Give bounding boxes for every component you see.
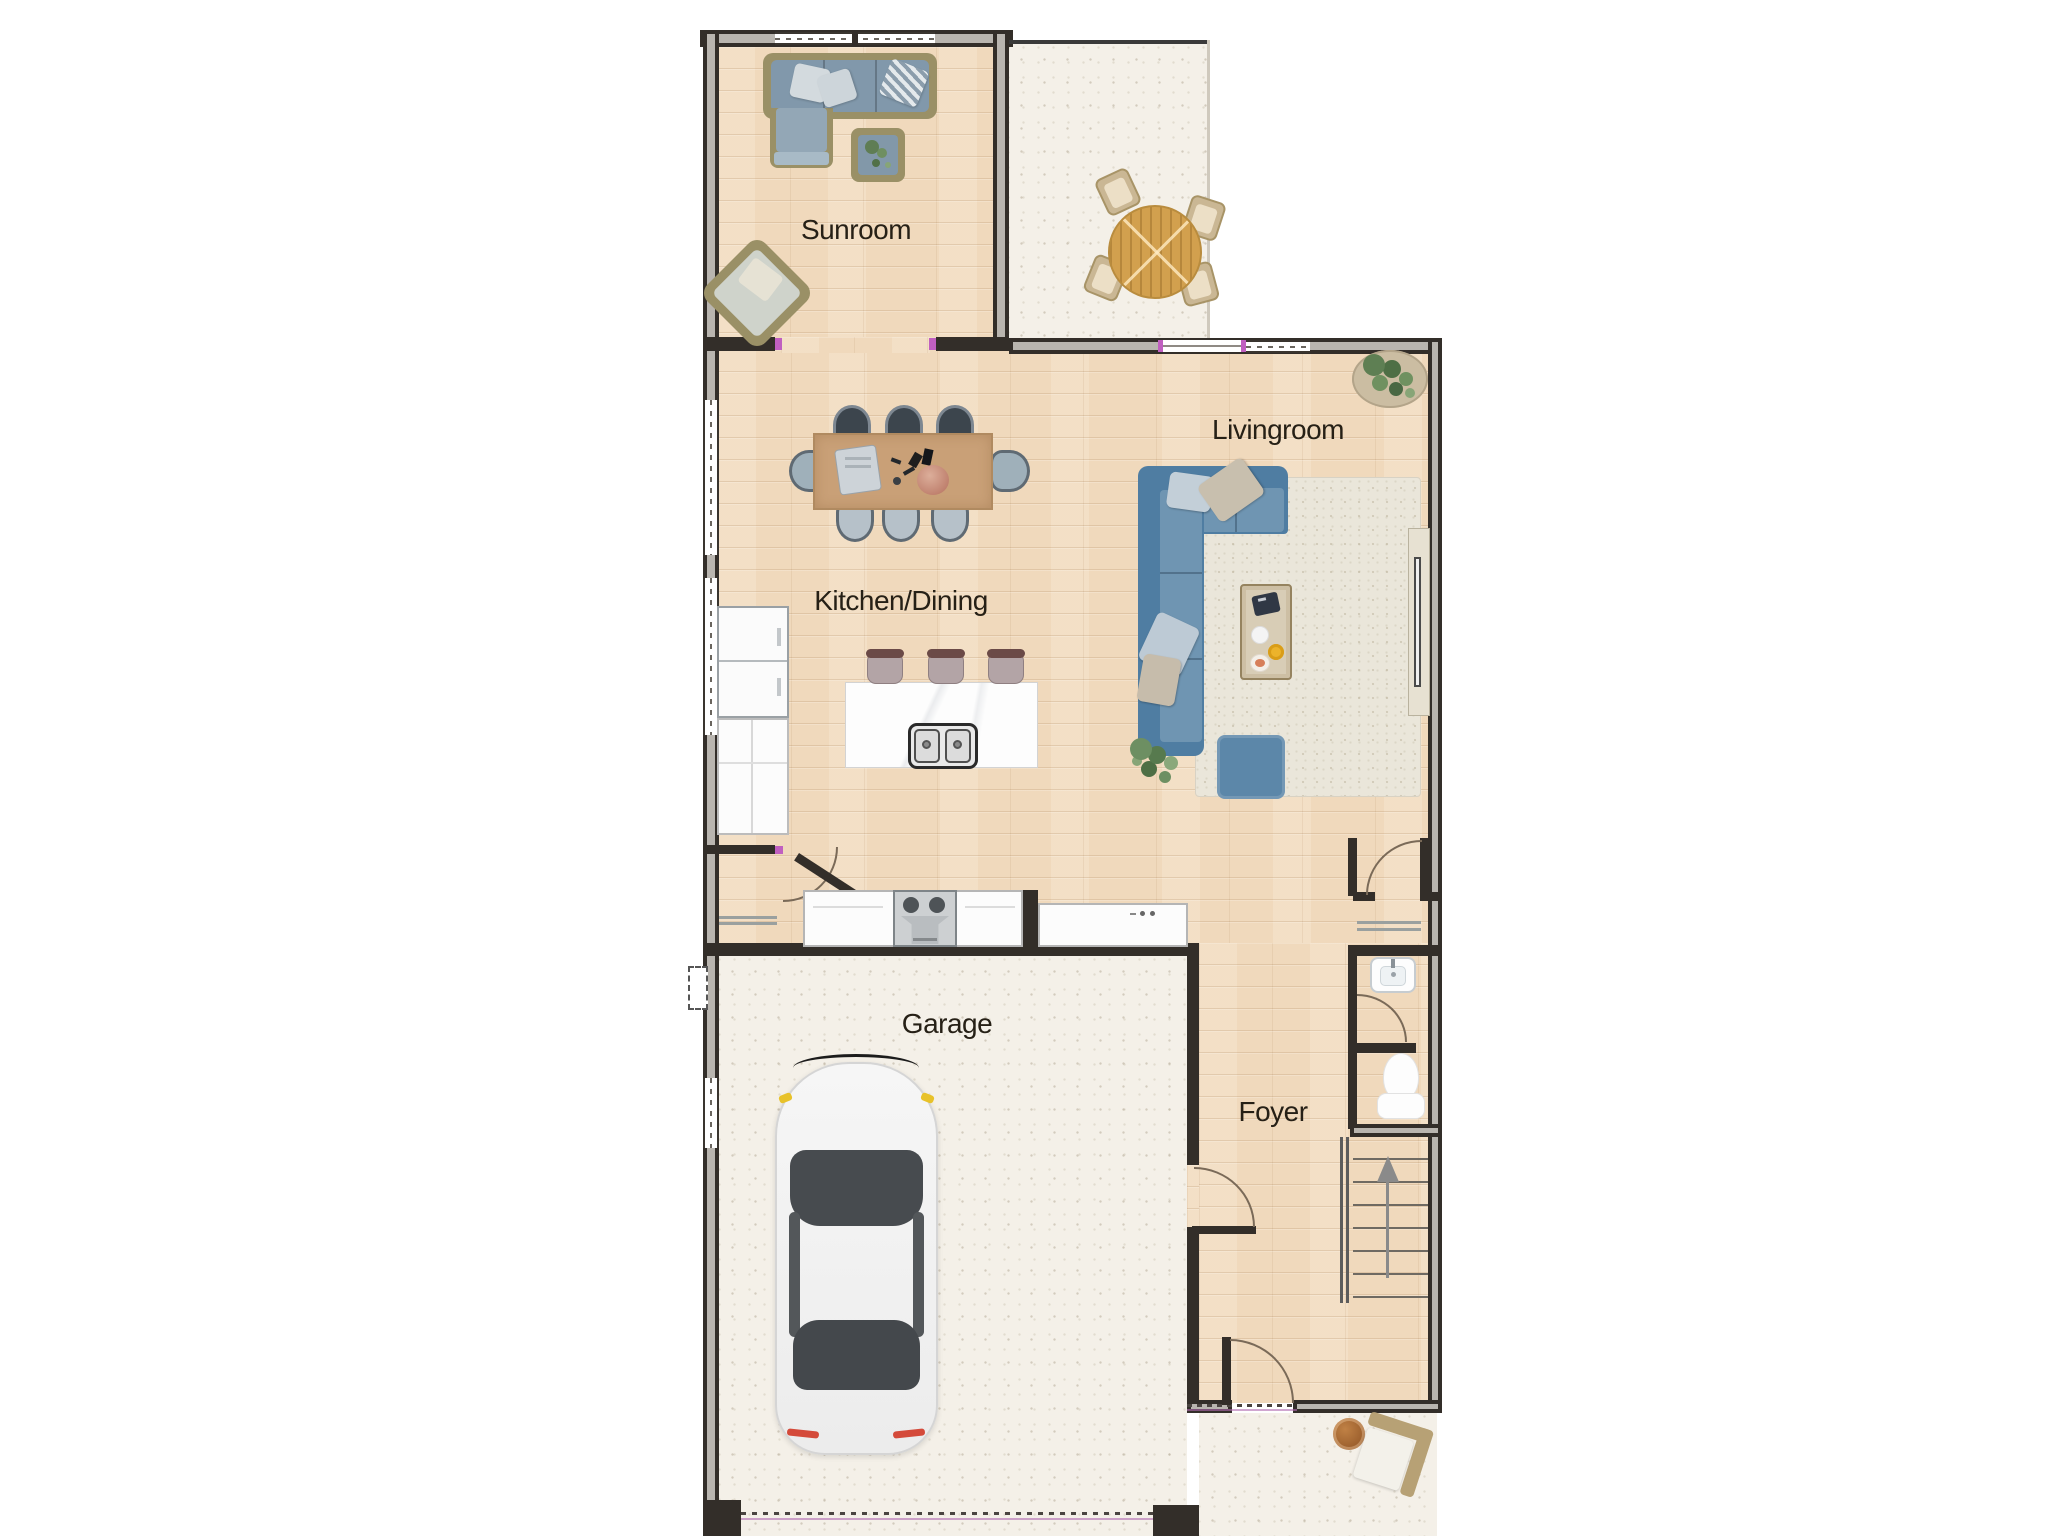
counter-divider-stub (1023, 890, 1038, 953)
room-label-kitchen-dining: Kitchen/Dining (814, 585, 988, 617)
sunroom-patio-wall (993, 30, 1009, 350)
kitchen-counter-right (1038, 903, 1188, 947)
garage-corner-block-right (1153, 1505, 1199, 1536)
bar-stool-icon (928, 652, 964, 684)
floor-plan: Sunroom Kitchen/Dining Livingroom Garage… (0, 0, 2048, 1536)
potted-plant-icon (1352, 350, 1428, 408)
sunroom-opening-jamb-left (775, 338, 782, 350)
front-door-threshold-accent (1187, 1409, 1297, 1411)
potted-plant-icon (1130, 738, 1152, 760)
powder-door-hinge (1348, 986, 1357, 998)
sunroom-opening-jamb-right (929, 338, 936, 350)
right-exterior-wall (1428, 338, 1442, 1413)
room-label-livingroom: Livingroom (1212, 414, 1344, 446)
garage-door (741, 1512, 1153, 1515)
plant-side-table-icon (851, 128, 905, 182)
closet-shelf (1357, 921, 1421, 924)
ottoman-icon (1217, 735, 1285, 799)
garage-corner-block (703, 1500, 741, 1536)
sunroom-opening-floor (781, 337, 937, 353)
pantry-top-wall (703, 845, 775, 854)
range-cooktop-icon (893, 890, 957, 947)
stair-railing-inner (1346, 1137, 1349, 1303)
bar-stool-icon (988, 652, 1024, 684)
tv-console-icon (1408, 528, 1430, 716)
livingroom-top-window (1246, 340, 1310, 353)
dining-table-icon (813, 433, 993, 510)
double-sink-icon (908, 723, 978, 769)
garage-exterior-marker (688, 966, 708, 1010)
dining-left-window-1 (703, 400, 719, 555)
room-label-garage: Garage (902, 1008, 992, 1040)
powder-left-wall (1348, 956, 1357, 1046)
garage-left-window (703, 1078, 719, 1148)
toilet-room-left-wall (1348, 1053, 1357, 1129)
powder-toilet-wall (1348, 1043, 1416, 1053)
garage-foyer-door-leaf (1192, 1226, 1256, 1234)
closet-powder-wall (1348, 945, 1440, 956)
dining-chair-icon (990, 450, 1030, 492)
closet-alcove-stub (1348, 838, 1357, 896)
slider-jamb-left (1158, 340, 1163, 352)
bathroom-sink-icon (1370, 957, 1416, 993)
patio-top-edge (1009, 40, 1210, 44)
closet-shelf-2 (1357, 928, 1421, 931)
coffee-table-icon (1240, 584, 1292, 680)
garage-door-accent (741, 1518, 1153, 1520)
front-door-threshold (1187, 1404, 1297, 1407)
kitchen-counter-left (717, 718, 789, 835)
patio-slider-track (1158, 345, 1246, 347)
stair-railing-outer (1340, 1137, 1343, 1303)
sunroom-window-mullion (852, 30, 858, 47)
car-icon (775, 1062, 938, 1455)
room-label-sunroom: Sunroom (801, 214, 911, 246)
sunroom-bottom-wall-right (936, 337, 1009, 351)
room-label-foyer: Foyer (1238, 1096, 1307, 1128)
refrigerator-icon (717, 606, 789, 718)
bar-stool-icon (867, 652, 903, 684)
toilet-icon (1378, 1054, 1424, 1124)
foyer-bottom-wall-right (1293, 1400, 1442, 1413)
stair-direction-arrow (1386, 1180, 1389, 1278)
pantry-shelf-2 (719, 922, 777, 925)
toilet-stairs-wall (1350, 1124, 1442, 1137)
pantry-door-jamb (775, 846, 783, 854)
stair-arrow-head (1377, 1156, 1399, 1182)
sectional-chaise-icon (770, 108, 833, 168)
pantry-shelf (719, 916, 777, 919)
patio-round-table-icon (1108, 205, 1202, 299)
